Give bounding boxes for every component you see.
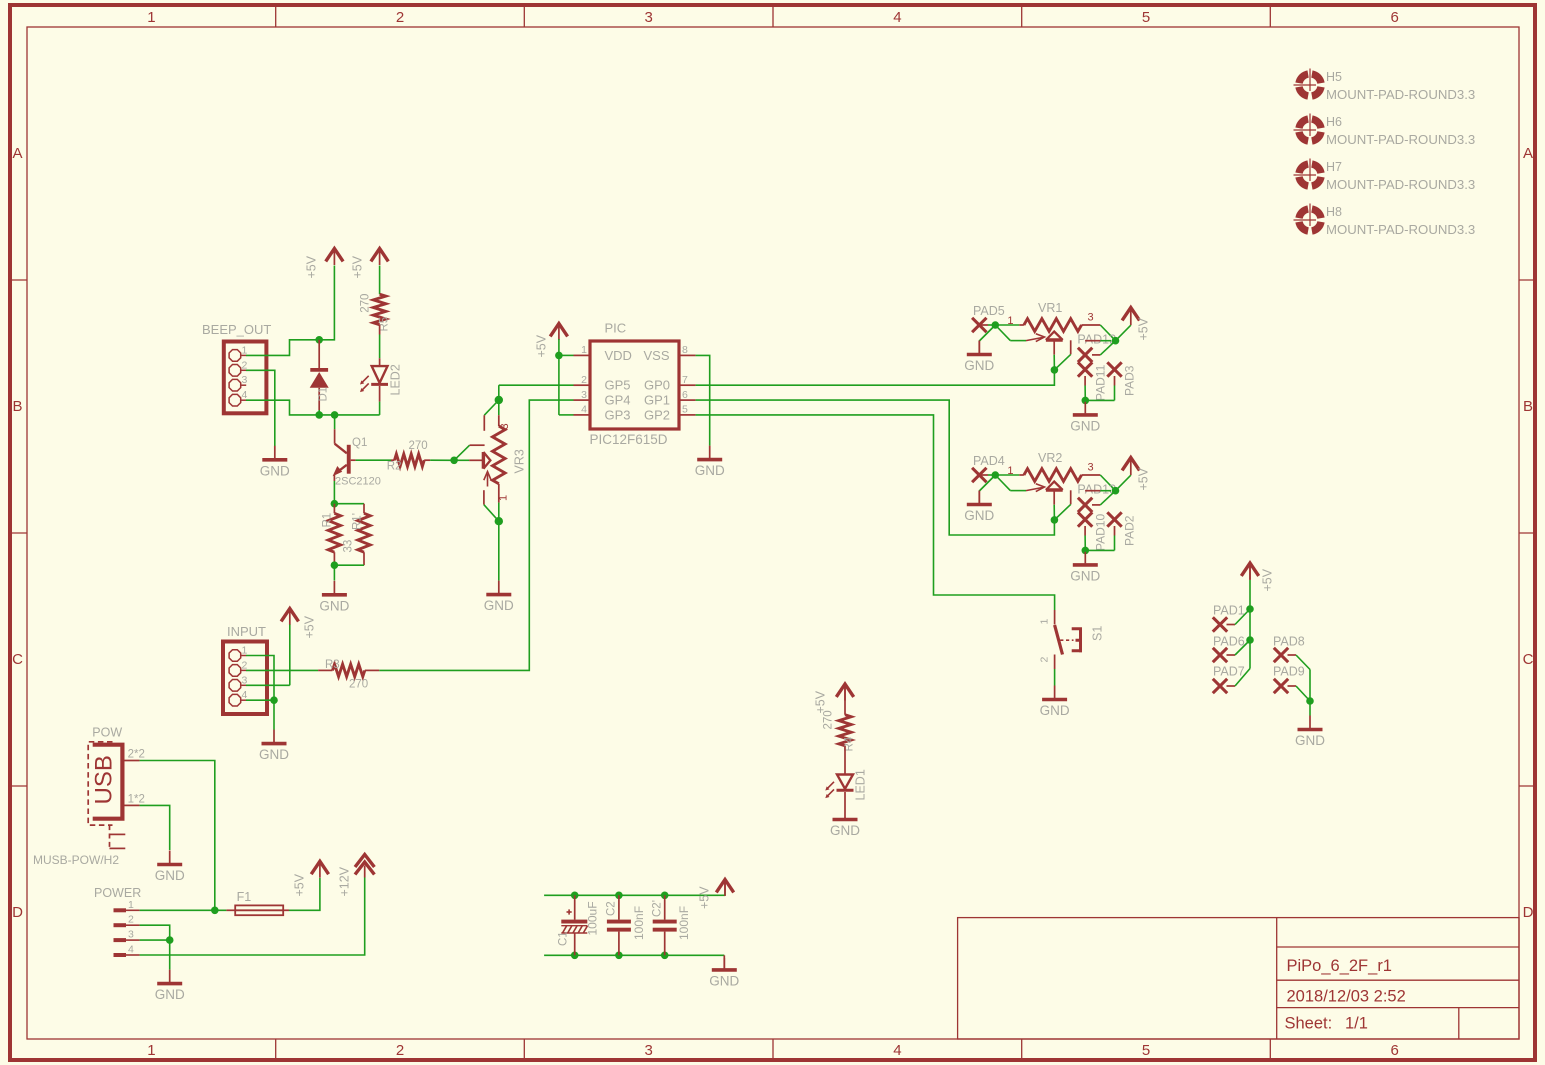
svg-text:4: 4 bbox=[128, 944, 134, 956]
svg-text:1: 1 bbox=[581, 344, 587, 356]
svg-text:GND: GND bbox=[1295, 733, 1325, 748]
svg-text:3: 3 bbox=[1088, 462, 1094, 474]
svg-text:PAD10: PAD10 bbox=[1094, 514, 1108, 551]
svg-text:USB: USB bbox=[91, 755, 118, 804]
svg-text:PAD12: PAD12 bbox=[1077, 333, 1116, 347]
svg-text:2: 2 bbox=[396, 9, 404, 26]
svg-text:1: 1 bbox=[128, 899, 134, 911]
svg-text:GP5: GP5 bbox=[605, 378, 631, 393]
svg-text:C: C bbox=[1523, 651, 1534, 668]
svg-text:GND: GND bbox=[830, 823, 860, 838]
svg-text:1: 1 bbox=[498, 495, 510, 501]
svg-text:PAD4: PAD4 bbox=[973, 454, 1005, 468]
svg-text:2018/12/03 2:52: 2018/12/03 2:52 bbox=[1287, 988, 1406, 1006]
svg-text:Q1: Q1 bbox=[352, 437, 367, 449]
svg-text:1*2: 1*2 bbox=[128, 794, 145, 806]
svg-text:3: 3 bbox=[1088, 312, 1094, 324]
svg-text:R1': R1' bbox=[352, 513, 364, 530]
svg-text:PIC: PIC bbox=[605, 321, 627, 336]
svg-text:VR3: VR3 bbox=[513, 449, 527, 473]
svg-text:+5V: +5V bbox=[1137, 317, 1151, 340]
svg-text:+5V: +5V bbox=[814, 690, 828, 713]
svg-text:A: A bbox=[12, 145, 22, 162]
svg-text:PAD13: PAD13 bbox=[1077, 483, 1116, 497]
svg-text:VR1: VR1 bbox=[1038, 301, 1062, 315]
svg-text:+12V: +12V bbox=[338, 866, 352, 896]
svg-text:R2: R2 bbox=[387, 461, 402, 473]
svg-text:1: 1 bbox=[1007, 465, 1013, 477]
svg-text:C2': C2' bbox=[652, 900, 664, 917]
svg-text:GP1: GP1 bbox=[644, 393, 670, 408]
svg-text:LED1: LED1 bbox=[854, 769, 868, 800]
svg-text:8: 8 bbox=[682, 344, 688, 356]
svg-text:3: 3 bbox=[499, 423, 511, 429]
svg-text:C2: C2 bbox=[606, 901, 618, 916]
svg-text:GP2: GP2 bbox=[644, 407, 670, 422]
svg-text:PAD3: PAD3 bbox=[1123, 365, 1137, 396]
svg-text:3: 3 bbox=[581, 389, 587, 401]
svg-text:2: 2 bbox=[396, 1042, 404, 1059]
svg-text:+5V: +5V bbox=[1137, 467, 1151, 490]
svg-text:MUSB-POW/H2: MUSB-POW/H2 bbox=[33, 853, 119, 867]
svg-text:GND: GND bbox=[155, 868, 185, 883]
svg-text:3: 3 bbox=[645, 9, 653, 26]
svg-text:1: 1 bbox=[1007, 315, 1013, 327]
svg-text:VDD: VDD bbox=[605, 348, 632, 363]
svg-text:+5V: +5V bbox=[698, 886, 712, 909]
svg-text:LED2: LED2 bbox=[389, 364, 403, 395]
svg-text:C: C bbox=[12, 651, 23, 668]
svg-text:INPUT: INPUT bbox=[227, 624, 266, 639]
svg-text:H6: H6 bbox=[1326, 115, 1342, 129]
svg-text:GND: GND bbox=[319, 598, 349, 613]
svg-text:+5V: +5V bbox=[1261, 568, 1275, 591]
svg-text:A: A bbox=[1523, 145, 1533, 162]
svg-text:D1: D1 bbox=[318, 387, 330, 402]
svg-text:PAD1: PAD1 bbox=[1213, 604, 1245, 618]
svg-text:H8: H8 bbox=[1326, 205, 1342, 219]
svg-text:1: 1 bbox=[1039, 619, 1051, 625]
svg-text:100nF: 100nF bbox=[677, 906, 691, 940]
svg-text:6: 6 bbox=[1391, 1042, 1399, 1059]
svg-text:MOUNT-PAD-ROUND3.3: MOUNT-PAD-ROUND3.3 bbox=[1326, 132, 1475, 147]
svg-text:PAD9: PAD9 bbox=[1273, 665, 1305, 679]
svg-text:270: 270 bbox=[349, 679, 368, 691]
svg-text:H7: H7 bbox=[1326, 160, 1342, 174]
svg-text:H5: H5 bbox=[1326, 70, 1342, 84]
svg-text:GND: GND bbox=[484, 598, 514, 613]
svg-text:4: 4 bbox=[893, 1042, 901, 1059]
svg-text:GND: GND bbox=[709, 973, 739, 988]
svg-text:270: 270 bbox=[360, 294, 372, 313]
svg-text:GND: GND bbox=[260, 463, 290, 478]
svg-text:B: B bbox=[1523, 398, 1533, 415]
svg-text:PAD5: PAD5 bbox=[973, 304, 1005, 318]
svg-text:3: 3 bbox=[242, 374, 248, 386]
svg-text:Sheet:: Sheet: bbox=[1285, 1015, 1333, 1033]
svg-text:3: 3 bbox=[645, 1042, 653, 1059]
svg-text:100nF: 100nF bbox=[632, 906, 646, 940]
svg-text:GND: GND bbox=[964, 358, 994, 373]
svg-text:4: 4 bbox=[581, 404, 587, 416]
svg-text:VSS: VSS bbox=[644, 348, 670, 363]
svg-text:5: 5 bbox=[1142, 9, 1150, 26]
svg-text:2: 2 bbox=[128, 914, 134, 926]
svg-text:GP0: GP0 bbox=[644, 378, 670, 393]
svg-text:PAD2: PAD2 bbox=[1123, 515, 1137, 546]
svg-text:MOUNT-PAD-ROUND3.3: MOUNT-PAD-ROUND3.3 bbox=[1326, 222, 1475, 237]
svg-text:PiPo_6_2F_r1: PiPo_6_2F_r1 bbox=[1287, 957, 1393, 975]
svg-text:+5V: +5V bbox=[305, 255, 319, 278]
svg-text:+5V: +5V bbox=[293, 873, 307, 896]
svg-text:BEEP_OUT: BEEP_OUT bbox=[202, 322, 271, 337]
svg-text:100uF: 100uF bbox=[586, 901, 600, 935]
svg-text:+5V: +5V bbox=[535, 334, 549, 357]
svg-text:270: 270 bbox=[409, 440, 428, 452]
svg-text:7: 7 bbox=[682, 374, 688, 386]
svg-text:GND: GND bbox=[964, 508, 994, 523]
svg-text:GP3: GP3 bbox=[605, 407, 631, 422]
svg-text:1: 1 bbox=[147, 1042, 155, 1059]
svg-text:PIC12F615D: PIC12F615D bbox=[590, 432, 668, 447]
svg-text:4: 4 bbox=[893, 9, 901, 26]
svg-text:5: 5 bbox=[1142, 1042, 1150, 1059]
svg-text:D: D bbox=[1523, 904, 1534, 921]
svg-text:GND: GND bbox=[695, 463, 725, 478]
svg-text:C1: C1 bbox=[558, 931, 570, 946]
svg-text:2SC2120: 2SC2120 bbox=[335, 476, 381, 488]
svg-text:3: 3 bbox=[128, 929, 134, 941]
svg-text:2*2: 2*2 bbox=[128, 749, 145, 761]
svg-text:GND: GND bbox=[1040, 703, 1070, 718]
svg-text:S1: S1 bbox=[1091, 626, 1105, 641]
svg-text:2: 2 bbox=[581, 374, 587, 386]
svg-text:6: 6 bbox=[682, 389, 688, 401]
svg-text:POWER: POWER bbox=[94, 886, 141, 900]
svg-text:PAD6: PAD6 bbox=[1213, 635, 1245, 649]
svg-text:GND: GND bbox=[155, 987, 185, 1002]
svg-text:GND: GND bbox=[1070, 418, 1100, 433]
svg-text:GND: GND bbox=[259, 747, 289, 762]
svg-text:1/1: 1/1 bbox=[1345, 1015, 1368, 1033]
svg-text:F1: F1 bbox=[237, 890, 252, 904]
svg-text:1: 1 bbox=[147, 9, 155, 26]
svg-text:R1: R1 bbox=[322, 513, 334, 528]
svg-text:+5V: +5V bbox=[303, 615, 317, 638]
svg-text:B: B bbox=[12, 398, 22, 415]
svg-text:PAD7: PAD7 bbox=[1213, 665, 1245, 679]
svg-text:PAD8: PAD8 bbox=[1273, 635, 1305, 649]
svg-text:MOUNT-PAD-ROUND3.3: MOUNT-PAD-ROUND3.3 bbox=[1326, 177, 1475, 192]
svg-text:R3: R3 bbox=[325, 659, 340, 671]
svg-text:270: 270 bbox=[823, 710, 835, 729]
svg-text:VR2: VR2 bbox=[1038, 451, 1062, 465]
svg-text:PAD11: PAD11 bbox=[1094, 364, 1108, 401]
svg-text:POW: POW bbox=[92, 726, 122, 740]
svg-text:GND: GND bbox=[1070, 568, 1100, 583]
svg-text:5: 5 bbox=[682, 404, 688, 416]
svg-text:MOUNT-PAD-ROUND3.3: MOUNT-PAD-ROUND3.3 bbox=[1326, 87, 1475, 102]
svg-text:GP4: GP4 bbox=[605, 393, 631, 408]
svg-text:33: 33 bbox=[343, 540, 355, 553]
svg-text:+5V: +5V bbox=[351, 255, 365, 278]
svg-text:2: 2 bbox=[1039, 657, 1051, 663]
svg-text:D: D bbox=[12, 904, 23, 921]
svg-text:6: 6 bbox=[1391, 9, 1399, 26]
